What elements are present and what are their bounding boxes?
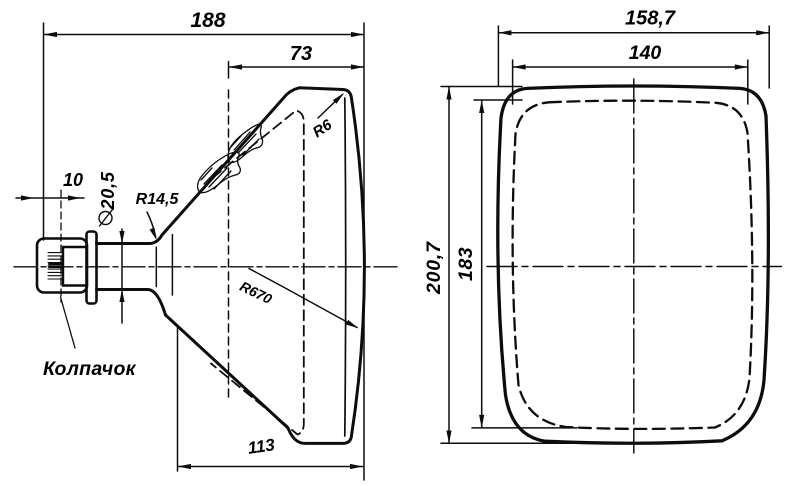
svg-text:73: 73 [290,43,312,65]
svg-text:158,7: 158,7 [625,8,676,30]
svg-text:R670: R670 [237,278,274,307]
svg-text:183: 183 [455,247,477,281]
svg-text:188: 188 [190,9,225,32]
svg-text:200,7: 200,7 [423,241,445,295]
svg-text:R6: R6 [310,116,336,141]
svg-text:R14,5: R14,5 [136,191,180,208]
svg-text:20,5: 20,5 [98,171,118,210]
svg-text:113: 113 [246,435,276,458]
svg-text:140: 140 [629,42,662,64]
svg-text:10: 10 [63,170,83,190]
svg-text:Колпачок: Колпачок [43,358,137,380]
